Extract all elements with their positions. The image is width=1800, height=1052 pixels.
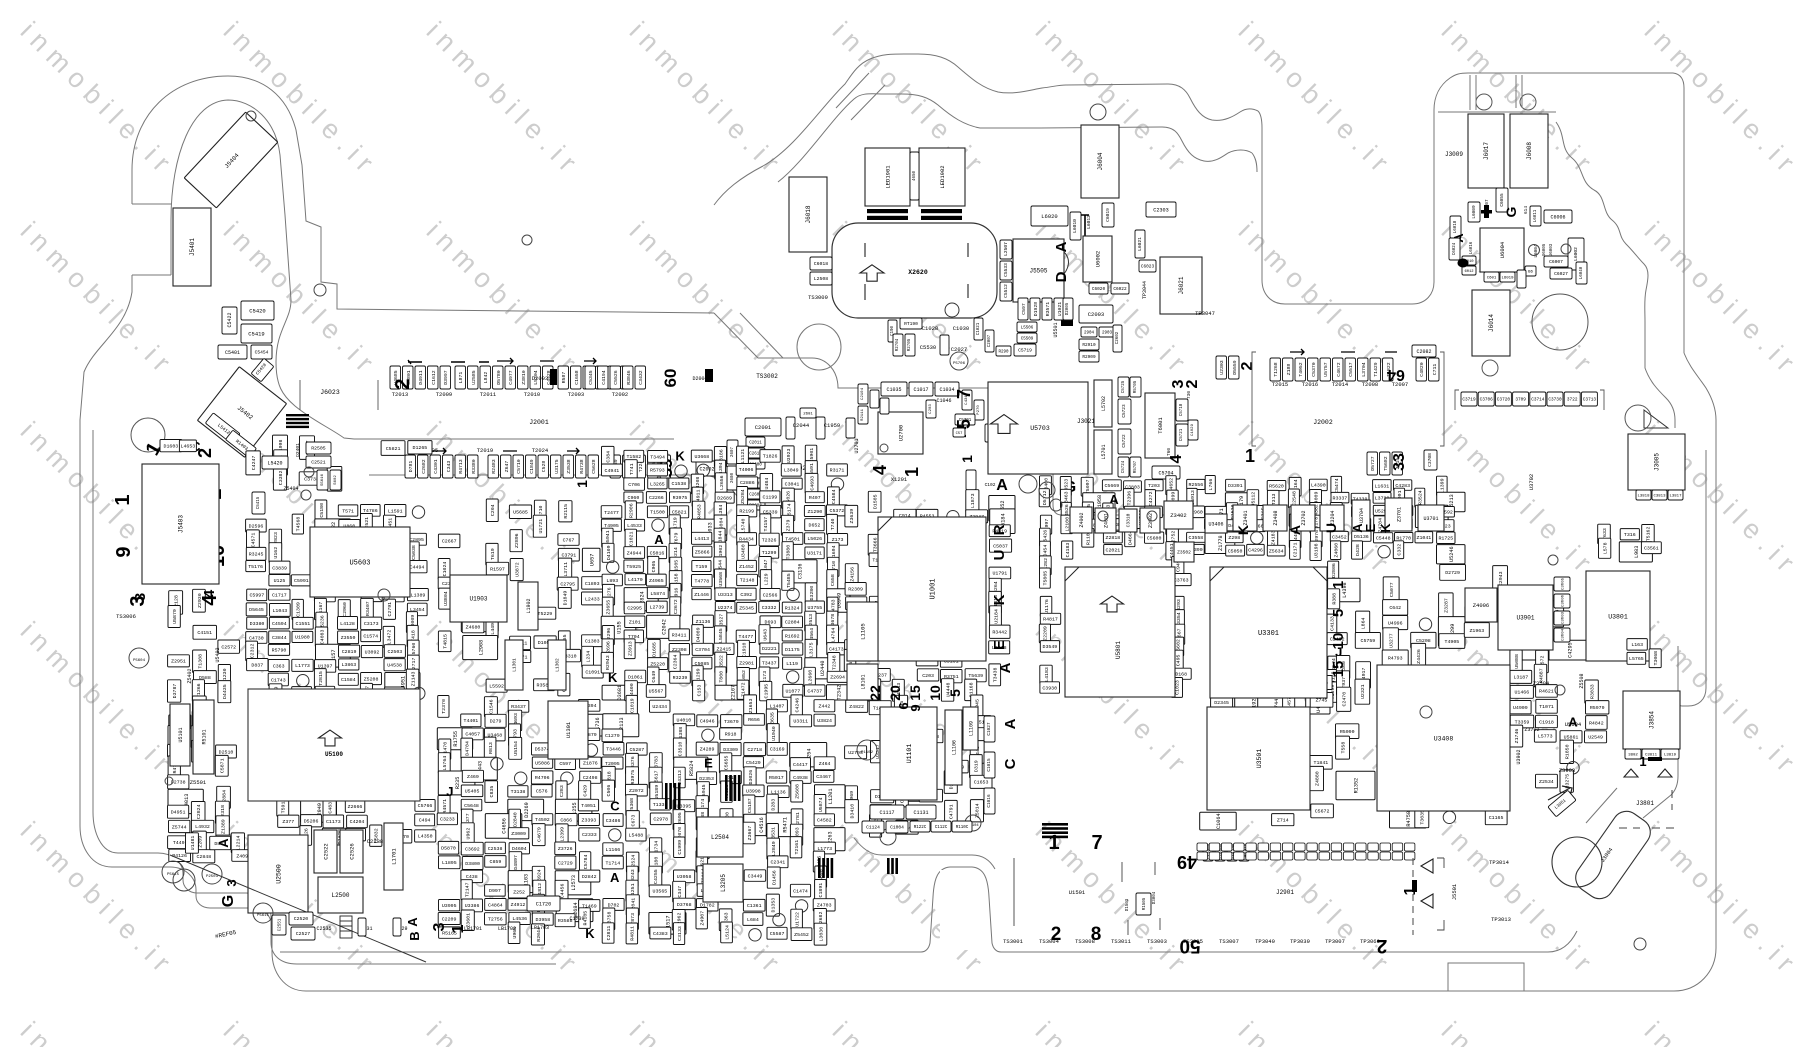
svg-text:C2995: C2995	[627, 606, 642, 612]
svg-text:J3854: J3854	[1649, 711, 1656, 729]
svg-text:R3524: R3524	[1418, 490, 1424, 505]
svg-text:C2672: C2672	[673, 599, 679, 614]
svg-text:7: 7	[1091, 832, 1102, 854]
svg-text:R3846: R3846	[626, 370, 632, 385]
svg-text:U1001: U1001	[930, 578, 938, 599]
svg-text:D1456: D1456	[772, 870, 778, 885]
svg-text:C1027: C1027	[987, 722, 992, 736]
svg-text:C3382: C3382	[278, 471, 284, 486]
svg-text:Z647: Z647	[504, 461, 510, 473]
svg-text:T2009: T2009	[436, 391, 453, 398]
svg-text:C1015: C1015	[987, 758, 992, 772]
svg-text:K: K	[608, 670, 618, 685]
svg-text:C438: C438	[466, 874, 478, 880]
svg-text:C2003: C2003	[1088, 311, 1105, 318]
svg-text:C5648: C5648	[464, 803, 479, 809]
svg-text:Z5501: Z5501	[190, 779, 207, 786]
svg-text:T4905: T4905	[1445, 639, 1460, 645]
svg-text:R: R	[991, 524, 1008, 535]
svg-text:R2943: R2943	[605, 655, 611, 670]
svg-text:U3995: U3995	[442, 903, 457, 909]
svg-text:22: 22	[867, 685, 883, 701]
svg-text:C283: C283	[559, 785, 565, 797]
svg-text:C2082: C2082	[1416, 349, 1431, 355]
svg-text:TP3013: TP3013	[1491, 916, 1511, 923]
svg-text:R3337: R3337	[1333, 495, 1348, 501]
svg-text:T2019: T2019	[477, 447, 494, 454]
svg-text:L2433: L2433	[585, 596, 600, 602]
svg-text:C5016: C5016	[650, 550, 665, 556]
svg-text:R5824: R5824	[689, 761, 695, 777]
svg-text:C5991: C5991	[294, 578, 309, 584]
svg-text:R3239: R3239	[673, 675, 688, 681]
svg-text:U3058: U3058	[677, 874, 692, 880]
svg-text:C6024: C6024	[1453, 242, 1457, 255]
svg-text:C1017: C1017	[913, 387, 928, 393]
svg-text:D2510: D2510	[219, 749, 234, 755]
svg-text:C5759: C5759	[1361, 638, 1376, 644]
svg-text:J5505: J5505	[1029, 268, 1047, 275]
svg-text:R813: R813	[488, 742, 494, 754]
svg-text:L5702: L5702	[1101, 396, 1107, 411]
svg-text:R1597: R1597	[490, 566, 505, 572]
svg-text:R3442: R3442	[992, 630, 1007, 636]
svg-text:C3136: C3136	[798, 564, 804, 580]
svg-text:L2399: L2399	[560, 827, 566, 842]
svg-text:C3606: C3606	[1561, 594, 1565, 607]
svg-text:2608: 2608	[731, 472, 735, 483]
svg-text:Z3009: Z3009	[511, 831, 526, 837]
svg-text:C2791: C2791	[387, 602, 393, 617]
svg-text:Z714: Z714	[1277, 818, 1289, 824]
svg-text:T2013: T2013	[392, 391, 409, 398]
svg-text:Z3726: Z3726	[558, 846, 573, 852]
svg-text:L4413: L4413	[694, 536, 709, 542]
svg-text:J5403: J5403	[178, 515, 185, 533]
svg-text:D2005: D2005	[1066, 302, 1070, 315]
svg-text:L1302: L1302	[555, 658, 561, 672]
svg-text:U4538: U4538	[387, 663, 402, 669]
svg-text:R5471: R5471	[782, 817, 788, 833]
svg-text:Z3655: Z3655	[606, 600, 612, 615]
svg-text:Z2666: Z2666	[348, 804, 363, 810]
svg-text:C2042: C2042	[661, 619, 667, 635]
svg-text:T4051: T4051	[581, 803, 596, 809]
svg-text:C711: C711	[1432, 364, 1438, 376]
svg-text:D5136: D5136	[1354, 534, 1369, 540]
svg-text:C1024: C1024	[442, 562, 448, 577]
svg-text:C5050: C5050	[1228, 548, 1243, 554]
svg-text:C3605: C3605	[1561, 577, 1565, 590]
svg-text:C6022: C6022	[1113, 287, 1127, 292]
svg-text:C3452: C3452	[1332, 534, 1347, 540]
svg-text:Z4944: Z4944	[627, 550, 642, 556]
svg-text:Z2896: Z2896	[514, 533, 520, 548]
svg-text:Z101: Z101	[629, 620, 641, 626]
svg-text:Z5608: Z5608	[795, 784, 801, 799]
svg-text:C658: C658	[830, 574, 836, 586]
svg-text:L3205: L3205	[720, 874, 727, 892]
svg-text:L3817: L3817	[1669, 494, 1682, 498]
svg-text:C3558: C3558	[1189, 535, 1204, 541]
svg-text:X2620: X2620	[908, 269, 928, 276]
svg-text:Z409: Z409	[236, 853, 248, 859]
svg-text:LED1902: LED1902	[939, 165, 946, 188]
svg-text:U2374: U2374	[718, 605, 733, 611]
svg-text:Z3903: Z3903	[1559, 767, 1576, 774]
svg-text:C6020: C6020	[1092, 287, 1106, 292]
svg-text:U3301: U3301	[1258, 630, 1279, 638]
svg-text:C4737: C4737	[807, 688, 822, 694]
svg-text:C5533: C5533	[1003, 263, 1009, 277]
svg-text:E: E	[704, 756, 713, 771]
svg-text:Z3702: Z3702	[1301, 510, 1307, 525]
svg-text:T1582: T1582	[626, 454, 641, 460]
svg-text:L4170: L4170	[628, 577, 643, 583]
svg-text:C5710: C5710	[516, 459, 522, 474]
svg-text:C3730: C3730	[1548, 398, 1562, 403]
svg-text:T1841: T1841	[1314, 760, 1329, 766]
svg-text:A: A	[997, 662, 1014, 673]
svg-text:L2508: L2508	[814, 276, 829, 282]
svg-text:C2341: C2341	[770, 860, 785, 866]
svg-text:L234: L234	[585, 651, 591, 663]
svg-text:R2556: R2556	[1188, 482, 1203, 488]
svg-text:L6002: L6002	[1573, 247, 1579, 261]
svg-text:C1538: C1538	[672, 481, 687, 487]
svg-text:TS3001: TS3001	[1003, 938, 1024, 945]
svg-text:C4194: C4194	[601, 370, 607, 385]
svg-text:U1501: U1501	[1069, 889, 1086, 896]
svg-text:L3819: L3819	[1664, 753, 1677, 757]
svg-text:R3437: R3437	[511, 704, 526, 710]
svg-text:U3568: U3568	[718, 572, 724, 587]
svg-text:TS3007: TS3007	[1219, 938, 1239, 945]
svg-text:L6012: L6012	[1086, 215, 1092, 229]
svg-text:U484: U484	[764, 478, 770, 490]
svg-text:C: C	[1002, 758, 1019, 769]
svg-text:C5415: C5415	[257, 496, 261, 509]
svg-text:C1574: C1574	[363, 634, 378, 640]
svg-text:C1849: C1849	[529, 459, 535, 474]
svg-text:Z5508: Z5508	[1579, 673, 1585, 688]
svg-text:D2729: D2729	[1445, 570, 1460, 576]
svg-text:D3958: D3958	[535, 917, 550, 923]
svg-text:D1505: D1505	[872, 494, 878, 509]
svg-text:R5101: R5101	[201, 729, 207, 744]
svg-text:D3391: D3391	[1228, 483, 1243, 489]
svg-text:TP3040: TP3040	[1255, 938, 1275, 945]
svg-text:C4204: C4204	[350, 819, 365, 825]
svg-text:U4010: U4010	[677, 718, 692, 724]
svg-text:U3311: U3311	[793, 719, 808, 725]
svg-text:L6021: L6021	[1137, 237, 1143, 251]
svg-text:L2507: L2507	[1003, 242, 1009, 256]
svg-text:D4604: D4604	[512, 846, 527, 852]
svg-text:C4791: C4791	[949, 804, 955, 819]
svg-text:L3049: L3049	[784, 468, 799, 474]
svg-text:U3565: U3565	[653, 889, 668, 895]
svg-text:Z4907: Z4907	[700, 911, 706, 926]
svg-text:D5870: D5870	[441, 846, 456, 852]
svg-text:C1891: C1891	[818, 883, 824, 898]
svg-text:U3755: U3755	[807, 605, 822, 611]
svg-text:D1265: D1265	[413, 445, 428, 451]
svg-text:U3824: U3824	[817, 718, 832, 724]
svg-text:Z252: Z252	[513, 889, 525, 895]
svg-text:LB1701: LB1701	[464, 926, 482, 932]
svg-text:C384: C384	[606, 451, 612, 463]
svg-text:T2370: T2370	[441, 699, 447, 714]
svg-text:U3277: U3277	[1389, 633, 1395, 648]
svg-text:C4183: C4183	[1065, 543, 1071, 558]
svg-text:T2015: T2015	[1272, 381, 1289, 388]
svg-text:L2739: L2739	[650, 605, 665, 611]
svg-text:T5639: T5639	[968, 673, 983, 679]
svg-text:C494: C494	[419, 818, 431, 824]
svg-text:C4057: C4057	[465, 732, 480, 738]
svg-text:T2008: T2008	[1362, 381, 1379, 388]
svg-text:R2111: R2111	[861, 408, 865, 421]
svg-text:U3198: U3198	[1313, 543, 1319, 558]
svg-text:U3804: U3804	[443, 591, 449, 606]
svg-text:K: K	[1378, 523, 1393, 533]
svg-text:U2440: U2440	[820, 661, 826, 677]
svg-text:P2503: P2503	[206, 875, 219, 879]
svg-text:R1352: R1352	[1354, 778, 1360, 794]
svg-text:C2104: C2104	[861, 387, 865, 400]
svg-text:R3411: R3411	[672, 633, 687, 639]
svg-text:C859: C859	[490, 859, 502, 865]
svg-text:U5088: U5088	[1514, 654, 1520, 669]
svg-text:D3410: D3410	[849, 804, 855, 819]
svg-text:C2526: C2526	[349, 843, 356, 860]
svg-text:U5101: U5101	[178, 727, 184, 742]
svg-text:Z4703: Z4703	[817, 903, 832, 909]
svg-text:C2943: C2943	[1498, 571, 1504, 586]
svg-text:U5567: U5567	[649, 689, 664, 695]
svg-text:C4151: C4151	[197, 630, 212, 636]
svg-text:C5370: C5370	[1311, 362, 1317, 377]
svg-text:U1481: U1481	[190, 836, 196, 851]
svg-text:U3175: U3175	[554, 459, 560, 474]
svg-text:L2849: L2849	[771, 841, 777, 856]
svg-text:D: D	[1053, 271, 1070, 282]
svg-text:U5703: U5703	[1030, 425, 1050, 432]
svg-text:L1701: L1701	[391, 848, 398, 865]
svg-text:J5501: J5501	[1451, 883, 1458, 900]
svg-text:D5727: D5727	[1370, 456, 1376, 471]
svg-text:U5246: U5246	[1449, 546, 1455, 562]
svg-text:R2483: R2483	[491, 459, 497, 474]
svg-text:L1895: L1895	[442, 860, 457, 866]
svg-text:C6027: C6027	[1554, 271, 1568, 277]
svg-text:L4533: L4533	[627, 523, 642, 529]
svg-text:T5485: T5485	[786, 573, 792, 588]
svg-text:T3359: T3359	[1515, 719, 1530, 725]
svg-text:D997: D997	[489, 888, 501, 894]
svg-text:R2906: R2906	[629, 503, 635, 518]
svg-text:C5526: C5526	[613, 370, 619, 385]
svg-text:C2364: C2364	[672, 655, 678, 670]
svg-text:C2238: C2238	[367, 838, 384, 845]
svg-text:6012: 6012	[1464, 270, 1474, 274]
svg-text:614: 614	[1524, 206, 1529, 214]
svg-text:Z5208: Z5208	[364, 676, 379, 682]
svg-text:J6021: J6021	[1178, 276, 1185, 294]
svg-text:T3138: T3138	[511, 789, 526, 795]
svg-text:1: 1	[574, 480, 590, 488]
svg-text:C597: C597	[1021, 303, 1027, 315]
svg-text:C4295: C4295	[1568, 642, 1574, 658]
svg-text:L4536: L4536	[512, 916, 527, 922]
svg-text:R2505: R2505	[311, 446, 326, 452]
svg-text:L893: L893	[606, 578, 618, 584]
svg-text:J2901: J2901	[1276, 889, 1294, 896]
svg-text:C2312: C2312	[249, 644, 255, 659]
svg-text:C2520: C2520	[294, 916, 309, 922]
svg-text:L4350: L4350	[418, 834, 433, 840]
svg-text:C1584: C1584	[341, 677, 356, 683]
svg-text:U657: U657	[589, 554, 595, 566]
svg-text:L3704: L3704	[1361, 362, 1367, 377]
svg-text:C2848: C2848	[196, 854, 211, 860]
svg-text:U3902: U3902	[1516, 749, 1522, 764]
svg-text:R3171: R3171	[830, 468, 845, 474]
svg-text:R2115: R2115	[563, 504, 569, 519]
svg-text:C5037: C5037	[993, 543, 1008, 549]
svg-text:Z4156: Z4156	[850, 567, 856, 582]
svg-text:R3407: R3407	[365, 601, 371, 616]
svg-text:C2960: C2960	[342, 602, 348, 617]
svg-text:T5097: T5097	[1085, 479, 1091, 494]
svg-text:TP3007: TP3007	[1325, 938, 1345, 945]
svg-text:Z3402: Z3402	[1170, 512, 1187, 519]
svg-text:C5372: C5372	[830, 508, 845, 514]
svg-text:T316: T316	[1624, 532, 1636, 538]
svg-text:T5682: T5682	[1383, 456, 1389, 471]
svg-text:Z2107: Z2107	[731, 685, 737, 701]
svg-text:U4996: U4996	[1388, 620, 1403, 626]
svg-text:C2498: C2498	[583, 775, 598, 781]
svg-text:C5509: C5509	[1021, 338, 1034, 342]
svg-text:T5176: T5176	[248, 564, 263, 570]
svg-text:D3549: D3549	[1043, 644, 1058, 650]
svg-text:Z5634: Z5634	[1269, 549, 1284, 555]
svg-text:T3068: T3068	[1653, 651, 1659, 666]
svg-text:T449: T449	[173, 840, 185, 846]
svg-text:C5512: C5512	[1003, 284, 1009, 298]
svg-text:U5874: U5874	[818, 797, 824, 812]
svg-text:U1301: U1301	[565, 721, 572, 738]
svg-text:L1201: L1201	[828, 789, 834, 805]
svg-text:J3005: J3005	[1654, 453, 1661, 471]
svg-text:C2527: C2527	[296, 931, 311, 937]
svg-text:T2348: T2348	[832, 655, 838, 670]
svg-text:C1173: C1173	[326, 819, 341, 825]
svg-text:U3702: U3702	[1528, 474, 1535, 491]
svg-text:D1353: D1353	[771, 898, 777, 913]
svg-text:L2500: L2500	[331, 892, 349, 899]
svg-text:R1324: R1324	[785, 605, 800, 611]
svg-text:E: E	[1363, 523, 1378, 532]
svg-text:Z2534: Z2534	[1539, 779, 1554, 785]
svg-text:C5719: C5719	[1018, 348, 1032, 354]
svg-text:5: 5	[954, 419, 974, 429]
svg-text:U1980: U1980	[295, 635, 310, 641]
svg-text:C649: C649	[651, 671, 657, 683]
svg-text:C6023: C6023	[1141, 265, 1155, 270]
svg-text:T3437: T3437	[762, 660, 777, 666]
svg-text:J5401: J5401	[189, 238, 196, 256]
svg-text:C5997: C5997	[249, 593, 264, 599]
svg-text:U2701: U2701	[854, 438, 860, 453]
svg-text:R5979: R5979	[1590, 705, 1605, 711]
svg-text:C1546: C1546	[489, 699, 495, 714]
svg-text:Z4880: Z4880	[1314, 771, 1320, 786]
svg-text:T4006: T4006	[739, 467, 754, 473]
svg-text:C4582: C4582	[817, 818, 832, 824]
svg-text:U: U	[991, 550, 1008, 561]
svg-text:L1301: L1301	[512, 658, 518, 672]
svg-text:T6001: T6001	[1157, 417, 1164, 434]
svg-text:Z3538: Z3538	[566, 459, 572, 474]
svg-text:C4672: C4672	[1336, 362, 1342, 377]
svg-text:U3386: U3386	[465, 903, 480, 909]
svg-text:R4571: R4571	[442, 799, 448, 814]
svg-text:C4571: C4571	[251, 533, 257, 548]
svg-text:T2007: T2007	[1392, 381, 1409, 388]
svg-text:U5402: U5402	[215, 647, 221, 662]
svg-text:L1109: L1109	[968, 721, 974, 736]
svg-text:L4932: L4932	[195, 824, 210, 830]
svg-text:TS3006: TS3006	[116, 613, 136, 620]
svg-text:Z4426: Z4426	[1416, 649, 1422, 664]
svg-text:U3171: U3171	[807, 551, 822, 557]
svg-text:U1791: U1791	[992, 571, 1007, 577]
svg-text:D279: D279	[490, 719, 502, 725]
svg-text:C1035: C1035	[886, 387, 901, 393]
svg-text:U155: U155	[617, 621, 623, 633]
svg-text:Z4060: Z4060	[1333, 543, 1339, 558]
svg-text:LED1901: LED1901	[885, 165, 892, 189]
svg-text:Z464: Z464	[819, 761, 831, 767]
svg-text:E: E	[991, 640, 1008, 650]
svg-text:L6009: L6009	[1472, 205, 1477, 219]
svg-text:T2396: T2396	[1127, 491, 1133, 506]
svg-text:C4301: C4301	[433, 459, 439, 474]
svg-text:C5669: C5669	[1104, 483, 1119, 489]
svg-text:L6011: L6011	[1534, 209, 1538, 222]
svg-text:L6040: L6040	[1580, 266, 1584, 279]
svg-text:R4817: R4817	[1043, 617, 1058, 623]
svg-text:C1023: C1023	[1175, 680, 1181, 695]
svg-text:C3713: C3713	[1583, 398, 1597, 403]
svg-text:C1165: C1165	[1489, 815, 1504, 821]
svg-text:D5780: D5780	[496, 370, 502, 385]
svg-text:A: A	[405, 917, 420, 927]
svg-text:C3169: C3169	[770, 747, 785, 753]
svg-text:L5773: L5773	[1538, 734, 1553, 740]
svg-text:U5086: U5086	[535, 760, 550, 766]
svg-text:15: 15	[1330, 661, 1347, 678]
svg-text:Z379: Z379	[785, 519, 791, 531]
svg-text:T1500: T1500	[650, 510, 665, 516]
svg-text:C5420: C5420	[249, 308, 266, 315]
svg-text:D3280: D3280	[809, 586, 815, 601]
svg-text:U3998: U3998	[746, 789, 761, 795]
svg-text:3: 3	[431, 922, 448, 931]
